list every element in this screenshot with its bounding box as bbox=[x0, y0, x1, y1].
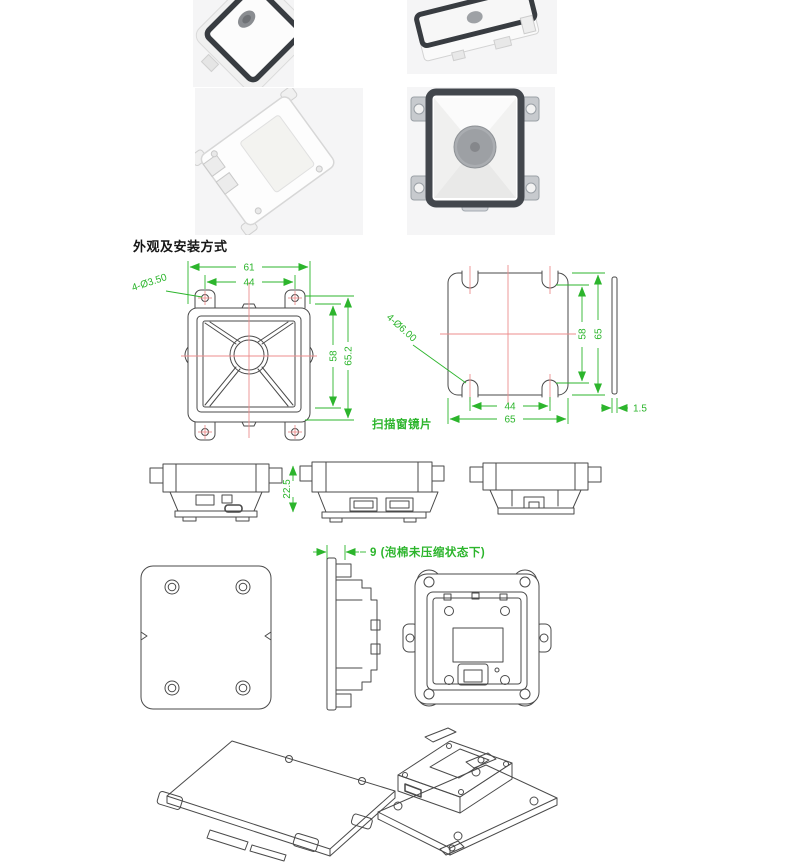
side-view-right bbox=[470, 463, 601, 514]
dim-label-window-inner-width: 44 bbox=[504, 402, 516, 413]
dim-label-window-hole-note: 4-Ø6.00 bbox=[384, 312, 419, 345]
dim-label-overall-height: 65.2 bbox=[344, 346, 355, 366]
dim-label-mount-hole-note: 4-Ø3.50 bbox=[131, 272, 169, 294]
drawing-side-views: 22.5 bbox=[150, 462, 601, 522]
dim-label-window-outer-height: 65 bbox=[594, 328, 605, 340]
micro-usb-port bbox=[405, 784, 421, 797]
photo-top-angled-view bbox=[407, 0, 557, 74]
foam-gap-dimension: 9 (泡棉未压缩状态下) bbox=[313, 545, 485, 560]
side-view-middle bbox=[300, 462, 444, 522]
dim-label-foam-gap: 9 (泡棉未压缩状态下) bbox=[370, 545, 485, 559]
lens-side-profile bbox=[612, 277, 617, 394]
dim-label-body-height: 58 bbox=[329, 350, 340, 362]
drawing-isometric-views bbox=[156, 728, 557, 861]
drawing-front-view: 61 44 4-Ø3.50 58 65.2 bbox=[131, 261, 355, 440]
dim-label-hole-spacing-width: 44 bbox=[243, 278, 255, 289]
dim-label-window-inner-height: 58 bbox=[578, 328, 589, 340]
mount-profile-view bbox=[327, 558, 380, 710]
dim-label-window-thickness: 1.5 bbox=[633, 404, 647, 415]
scan-window-dimensions: 4-Ø6.00 58 65 44 65 1.5 扫描窗镜片 bbox=[372, 273, 647, 431]
scan-window-label: 扫描窗镜片 bbox=[372, 417, 432, 431]
isometric-front-view bbox=[156, 741, 395, 861]
rear-view bbox=[403, 570, 551, 706]
dim-label-side-height: 22.5 bbox=[282, 479, 293, 499]
photo-front-diamond-view bbox=[192, 0, 316, 96]
product-photos bbox=[189, 0, 557, 236]
isometric-rear-view bbox=[378, 728, 557, 855]
spec-sheet-canvas: 61 44 4-Ø3.50 58 65.2 bbox=[0, 0, 790, 862]
photo-front-straight-view bbox=[407, 87, 555, 235]
side-view-left bbox=[150, 464, 282, 521]
dim-label-window-outer-width: 65 bbox=[504, 415, 516, 426]
mount-clip bbox=[292, 833, 319, 852]
side-view-height-dimension: 22.5 bbox=[282, 466, 293, 512]
drawing-rear-mount-section: 9 (泡棉未压缩状态下) bbox=[141, 545, 551, 710]
mount-panel-view bbox=[141, 566, 271, 709]
section-title: 外观及安装方式 bbox=[133, 236, 228, 255]
drawing-scan-window: 4-Ø6.00 58 65 44 65 1.5 扫描窗镜片 bbox=[372, 265, 647, 431]
photo-rear-angled-view bbox=[189, 84, 363, 236]
dim-label-overall-width: 61 bbox=[243, 263, 255, 274]
